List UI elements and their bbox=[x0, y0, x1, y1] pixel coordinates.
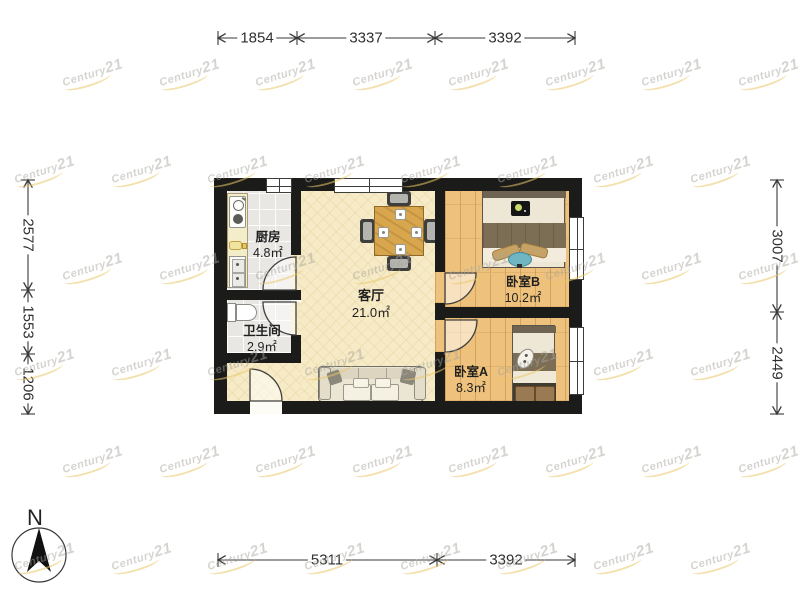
bedroom-b-door-arc bbox=[445, 273, 476, 304]
room-label-living: 客厅 21.0㎡ bbox=[331, 288, 411, 322]
kitchen-door-arc bbox=[263, 257, 296, 290]
bedroom-a-door-arc bbox=[445, 320, 477, 352]
entrance-door-arc bbox=[250, 369, 282, 401]
room-label-bathroom: 卫生间 2.9㎡ bbox=[232, 323, 292, 356]
floorplan-page: { "page": {"type": "apartment-floorplan"… bbox=[0, 0, 800, 600]
room-label-bedroom-a: 卧室A 8.3㎡ bbox=[431, 364, 511, 397]
room-label-kitchen: 厨房 4.8㎡ bbox=[238, 229, 298, 262]
north-arrow-icon bbox=[10, 524, 70, 586]
room-label-bedroom-b: 卧室B 10.2㎡ bbox=[483, 274, 563, 307]
